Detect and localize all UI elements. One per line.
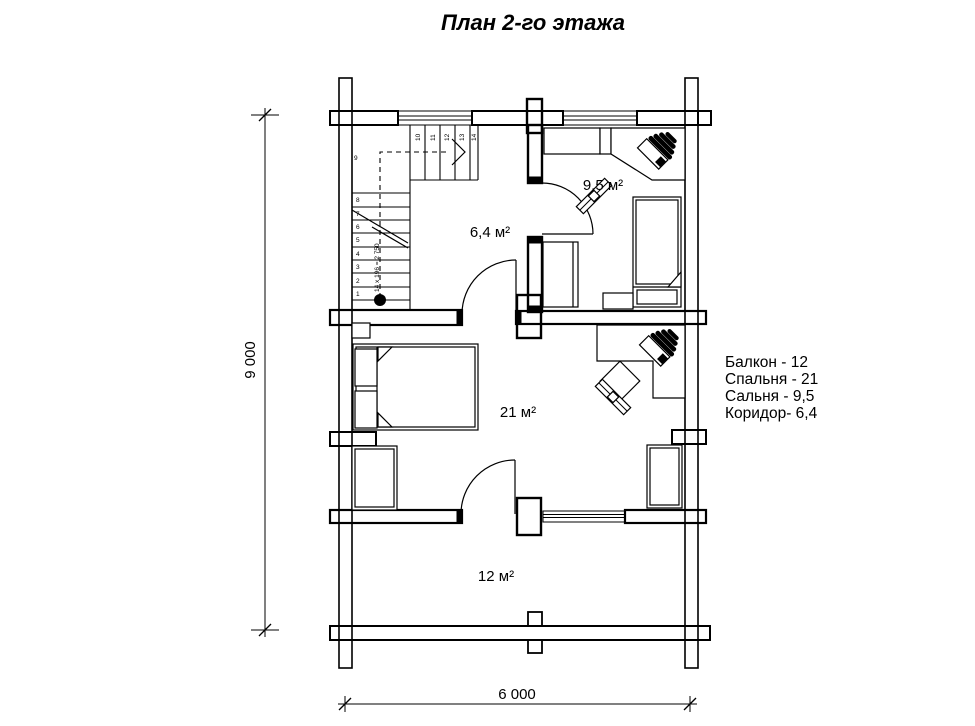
pillow [355, 349, 377, 386]
window-bottom [543, 511, 625, 522]
shelf-unit [544, 128, 600, 154]
bottom-wall-left [330, 510, 462, 523]
shelf-unit-side [600, 128, 611, 154]
wardrobe-right [647, 445, 682, 508]
legend-item: Балкон - 12 [725, 354, 808, 371]
step-number: 2 [356, 278, 360, 285]
bottom-wall-right [625, 510, 706, 523]
step-number: 10 [415, 133, 422, 141]
floor-plan-drawing: 1 2 3 4 5 6 7 8 9 10 11 12 13 14 14 x 19… [0, 0, 975, 726]
dimension-horizontal: 6 000 [338, 686, 697, 712]
log-end-top-right [698, 111, 711, 125]
floor-plan-page: 1 2 3 4 5 6 7 8 9 10 11 12 13 14 14 x 19… [0, 0, 975, 726]
mid-wall-left [330, 310, 462, 325]
legend: Балкон - 12 Спальня - 21 Сальня - 9,5 Ко… [725, 354, 818, 422]
center-post-bottom [517, 498, 541, 535]
dimension-width-label: 6 000 [498, 686, 536, 703]
step-number: 11 [430, 134, 437, 141]
center-post-top [527, 99, 542, 133]
balcony-post-lower [528, 640, 542, 653]
door-balcony [461, 460, 515, 514]
mid-wall-right [516, 311, 706, 324]
room-label-corridor: 6,4 м² [470, 224, 510, 241]
bed-double [353, 344, 478, 430]
plan-title: План 2-го этажа [441, 10, 625, 35]
stair-run-label: 14 x 196 = 2 750 [374, 243, 381, 292]
step-number: 6 [356, 224, 360, 231]
stair-direction-arrow [452, 139, 465, 165]
dimension-vertical: 9 000 [242, 108, 279, 637]
step-number: 12 [444, 133, 451, 141]
legend-item: Спальня - 21 [725, 371, 818, 388]
top-wall-segment-mid [472, 111, 563, 125]
room-label-large-bedroom: 21 м² [500, 404, 536, 421]
log-end-right [672, 430, 706, 444]
window-top-right [563, 111, 637, 125]
legend-item: Коридор- 6,4 [725, 405, 818, 422]
door-jamb [528, 237, 542, 243]
side-table [603, 293, 633, 309]
top-wall-segment-right [637, 111, 698, 125]
step-number: 9 [354, 155, 358, 162]
bed-single [633, 197, 681, 307]
step-number: 1 [356, 291, 360, 298]
door-large-bedroom [462, 260, 516, 314]
balcony-rail [330, 626, 710, 640]
nightstand [352, 323, 370, 338]
left-exterior-wall [339, 78, 352, 668]
step-number: 8 [356, 197, 360, 204]
step-number: 3 [356, 264, 360, 271]
step-number: 13 [459, 133, 466, 141]
legend-item: Сальня - 9,5 [725, 388, 814, 405]
step-number: 14 [471, 133, 478, 141]
stair-lower-run [352, 193, 410, 300]
window-top-left [398, 111, 472, 125]
pillow [355, 391, 377, 428]
log-end-left [330, 432, 376, 446]
wardrobe-left [352, 446, 397, 510]
balcony-post-upper [528, 612, 542, 626]
step-number: 7 [356, 211, 360, 218]
newel-post [374, 294, 386, 306]
wardrobe-small-bedroom [543, 242, 578, 307]
right-exterior-wall [685, 78, 698, 668]
door-jamb [457, 310, 462, 325]
stair-walk-line [380, 152, 448, 298]
room-label-balcony: 12 м² [478, 568, 514, 585]
dimension-height-label: 9 000 [242, 341, 259, 379]
room-label-small-bedroom: 9,5 м² [583, 177, 623, 194]
door-jamb [528, 177, 542, 183]
top-wall-segment-left [330, 111, 398, 125]
step-number: 4 [356, 251, 360, 258]
step-number: 5 [356, 237, 360, 244]
staircase: 1 2 3 4 5 6 7 8 9 10 11 12 13 14 14 x 19… [352, 125, 478, 310]
